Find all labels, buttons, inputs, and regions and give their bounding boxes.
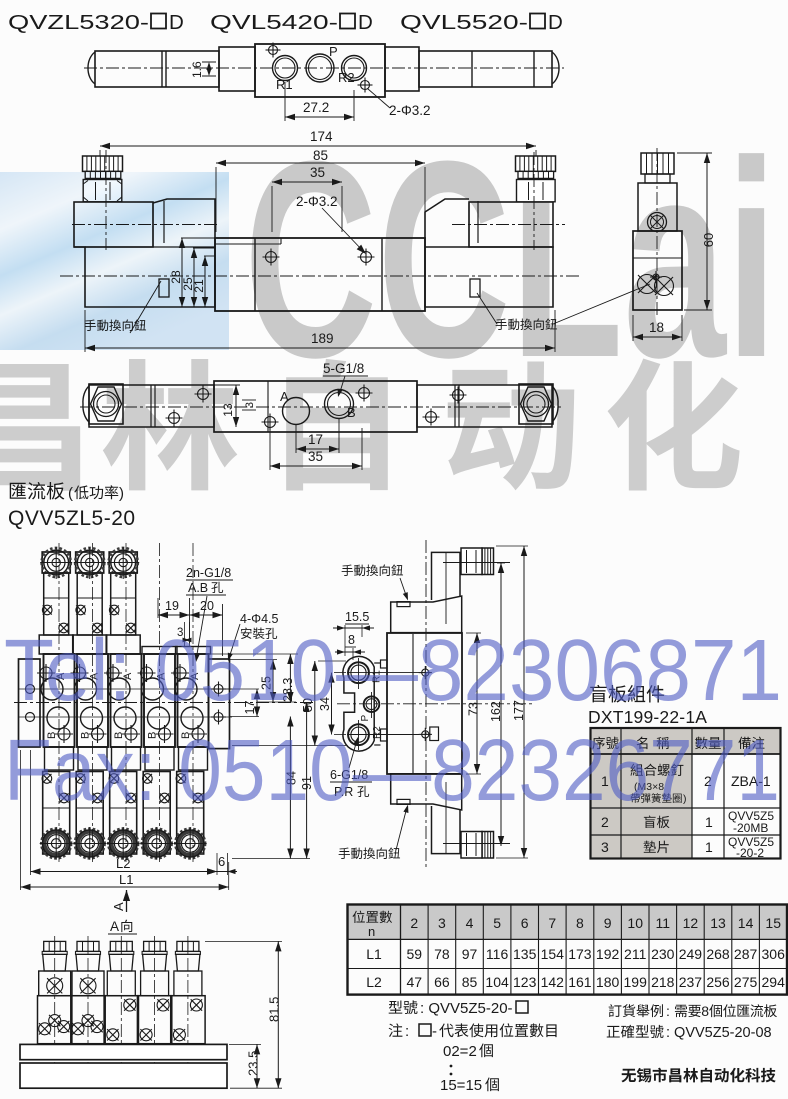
svg-text:QVL5520-: QVL5520- [400, 11, 528, 34]
svg-text:19: 19 [165, 599, 179, 613]
svg-text:A: A [111, 902, 126, 911]
svg-text:154: 154 [541, 946, 565, 962]
svg-text:15: 15 [765, 915, 781, 931]
svg-text:116: 116 [486, 946, 509, 962]
svg-text:n: n [368, 924, 375, 939]
svg-text:97: 97 [462, 946, 478, 962]
svg-text:-20-2: -20-2 [736, 846, 764, 860]
svg-text:L1: L1 [119, 872, 133, 887]
svg-text:: QVV5Z5-20-: : QVV5Z5-20- [420, 1000, 513, 1017]
svg-text:8: 8 [701, 1003, 709, 1019]
svg-text:85: 85 [313, 148, 328, 163]
svg-text:2: 2 [410, 915, 418, 931]
svg-text:275: 275 [734, 974, 758, 990]
svg-text:02=2: 02=2 [443, 1043, 477, 1060]
svg-text:18: 18 [649, 320, 664, 335]
svg-text:R2: R2 [338, 70, 355, 85]
svg-text:161: 161 [568, 974, 592, 990]
svg-text:A.B: A.B [188, 581, 208, 595]
svg-text:14: 14 [738, 915, 754, 931]
svg-text::: : [666, 1003, 670, 1019]
svg-text:-: - [432, 1023, 437, 1040]
svg-text:27.2: 27.2 [303, 100, 329, 115]
svg-text:199: 199 [624, 974, 648, 990]
svg-text:47: 47 [407, 974, 423, 990]
svg-text:60: 60 [701, 233, 716, 247]
svg-text:: QVV5Z5-20-08: : QVV5Z5-20-08 [666, 1025, 772, 1041]
svg-text:L2: L2 [366, 974, 382, 990]
svg-text:3: 3 [438, 915, 446, 931]
svg-text:3: 3 [601, 839, 609, 855]
svg-text:35: 35 [308, 449, 323, 464]
svg-text:12: 12 [683, 915, 699, 931]
svg-text:306: 306 [762, 946, 786, 962]
svg-text:4: 4 [466, 915, 474, 931]
svg-text:B: B [347, 405, 356, 420]
svg-text:142: 142 [541, 974, 565, 990]
svg-text:A: A [110, 919, 119, 934]
svg-text:13: 13 [221, 403, 235, 417]
svg-text:81.5: 81.5 [267, 997, 282, 1022]
svg-text:294: 294 [762, 974, 786, 990]
svg-text:189: 189 [311, 331, 334, 346]
svg-text:P: P [329, 44, 338, 59]
svg-text:180: 180 [596, 974, 620, 990]
svg-text:35: 35 [310, 165, 325, 180]
svg-text:85: 85 [462, 974, 478, 990]
svg-text:2n-G1/8: 2n-G1/8 [186, 566, 231, 580]
svg-text:R1: R1 [276, 77, 293, 92]
svg-text:123: 123 [513, 974, 537, 990]
svg-text:1.6: 1.6 [190, 61, 204, 78]
svg-text:L2: L2 [116, 856, 130, 871]
svg-text:78: 78 [434, 946, 450, 962]
svg-text:QVL5420-: QVL5420- [210, 11, 338, 34]
svg-text::: : [405, 1023, 409, 1040]
svg-text:2-Φ3.2: 2-Φ3.2 [389, 103, 431, 118]
svg-text:20: 20 [200, 599, 214, 613]
svg-text:237: 237 [679, 974, 703, 990]
svg-text:Fax: 0510—82326771: Fax: 0510—82326771 [4, 722, 780, 819]
svg-text:D: D [358, 11, 373, 34]
svg-text:11: 11 [656, 915, 671, 931]
svg-text:104: 104 [485, 974, 509, 990]
svg-text:268: 268 [706, 946, 730, 962]
svg-text:(: ( [68, 485, 73, 502]
svg-text:59: 59 [407, 946, 423, 962]
svg-text:192: 192 [596, 946, 620, 962]
svg-text:287: 287 [734, 946, 758, 962]
svg-text:8: 8 [576, 915, 584, 931]
svg-text:2-Φ3.2: 2-Φ3.2 [296, 194, 338, 209]
svg-text:211: 211 [624, 946, 647, 962]
svg-text:249: 249 [679, 946, 703, 962]
svg-text:L1: L1 [366, 946, 382, 962]
svg-text:9: 9 [604, 915, 612, 931]
svg-text:10: 10 [627, 915, 643, 931]
svg-text:17: 17 [308, 432, 323, 447]
svg-text:5-G1/8: 5-G1/8 [323, 361, 364, 376]
svg-text:23.5: 23.5 [246, 1051, 261, 1076]
svg-text:66: 66 [434, 974, 450, 990]
svg-text:230: 230 [651, 946, 675, 962]
svg-text:3: 3 [244, 402, 256, 408]
svg-text:QVZL5320-: QVZL5320- [8, 11, 149, 34]
svg-text:5: 5 [493, 915, 501, 931]
svg-text:6: 6 [218, 854, 225, 869]
svg-text:D: D [548, 11, 563, 34]
svg-text:13: 13 [710, 915, 726, 931]
svg-text:174: 174 [310, 129, 333, 144]
svg-text:6: 6 [521, 915, 529, 931]
svg-text:-20MB: -20MB [733, 821, 768, 835]
svg-text:): ) [119, 485, 124, 502]
svg-text:A: A [280, 389, 289, 404]
svg-text:135: 135 [513, 946, 537, 962]
svg-text:218: 218 [651, 974, 675, 990]
svg-text:256: 256 [706, 974, 730, 990]
svg-text:173: 173 [568, 946, 592, 962]
svg-text:15=15: 15=15 [440, 1077, 482, 1094]
svg-text:7: 7 [548, 915, 556, 931]
svg-text:D: D [169, 11, 184, 34]
svg-text:1: 1 [705, 839, 713, 855]
svg-text:QVV5ZL5-20: QVV5ZL5-20 [8, 507, 136, 530]
svg-text:Tel: 0510—82306871: Tel: 0510—82306871 [4, 622, 782, 719]
